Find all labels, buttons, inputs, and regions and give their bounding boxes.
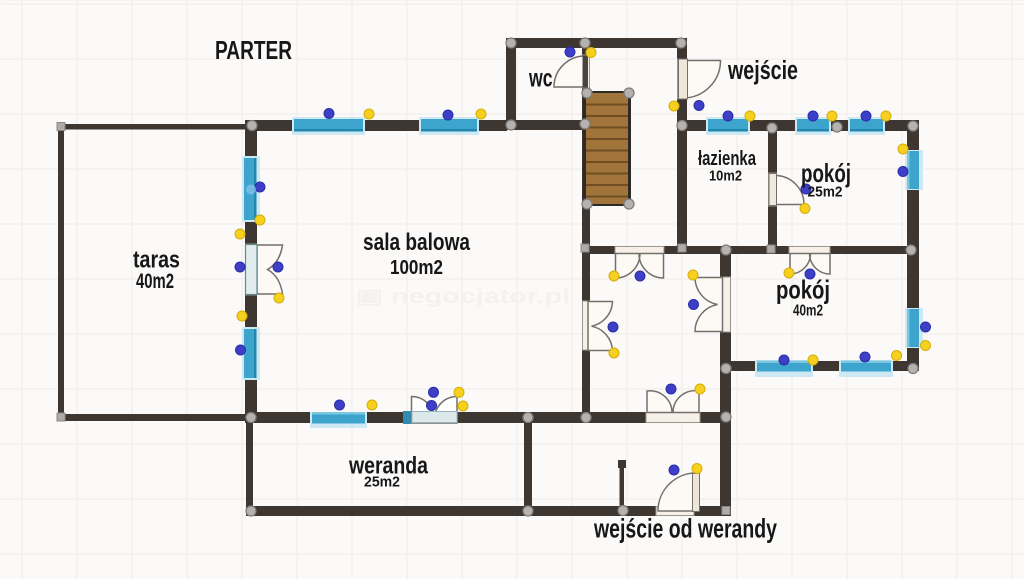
svg-text:wejście: wejście [727,57,798,85]
svg-text:25m2: 25m2 [364,475,400,491]
svg-text:sala balowa: sala balowa [363,229,470,256]
svg-text:40m2: 40m2 [793,303,823,320]
svg-text:wc: wc [528,65,552,93]
svg-text:pokój: pokój [776,275,830,305]
svg-text:25m2: 25m2 [808,184,843,201]
svg-text:40m2: 40m2 [136,270,174,293]
svg-text:10m2: 10m2 [709,168,742,185]
svg-text:100m2: 100m2 [390,257,443,279]
svg-text:▣ negocjator.pl: ▣ negocjator.pl [356,286,570,308]
svg-text:wejście od werandy: wejście od werandy [593,514,777,544]
svg-text:PARTER: PARTER [215,35,292,65]
